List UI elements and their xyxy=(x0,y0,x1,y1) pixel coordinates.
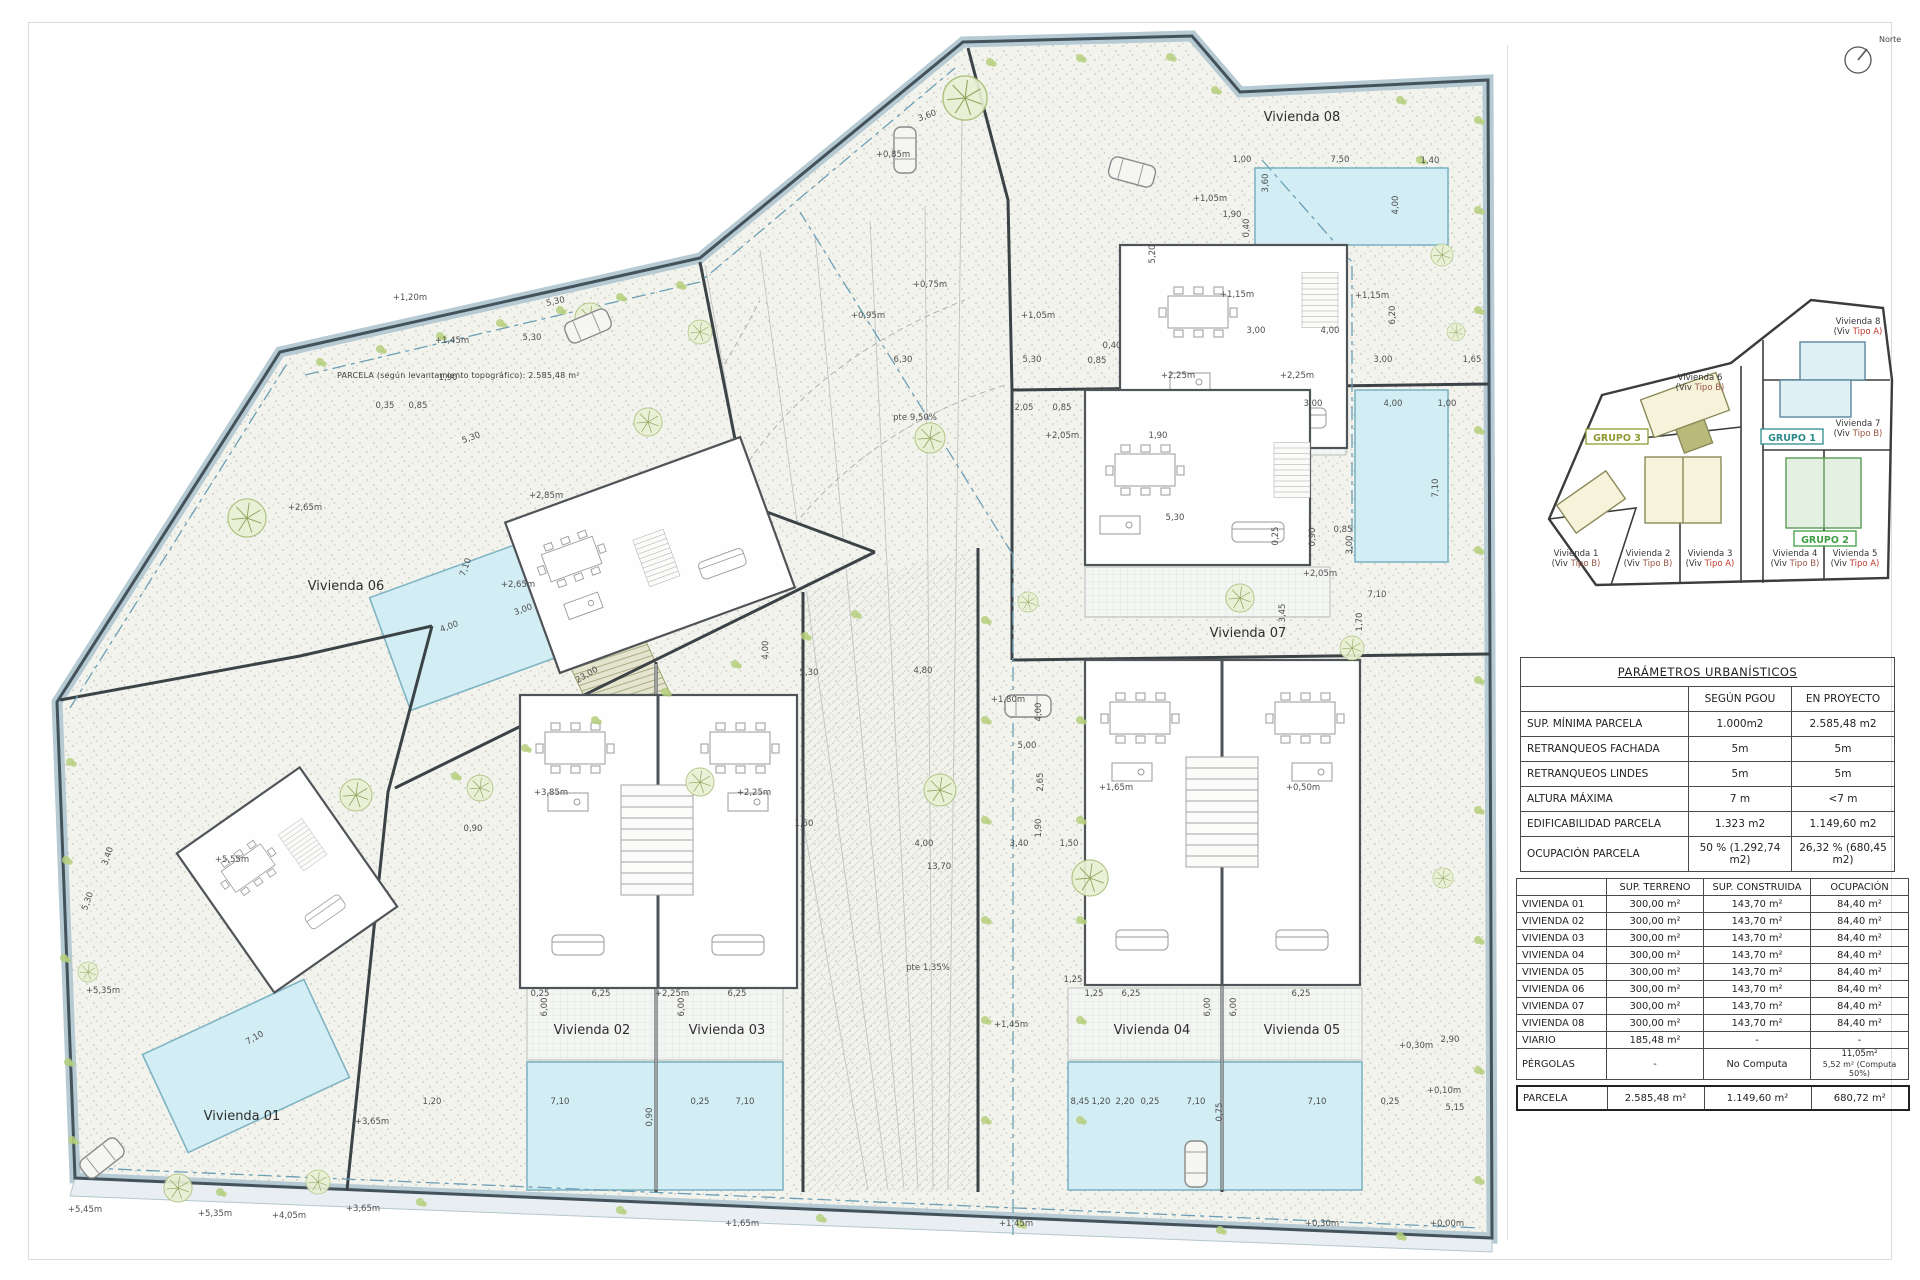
areas-header-cell: OCUPACIÓN xyxy=(1811,879,1909,896)
north-arrow: Norte xyxy=(1833,28,1908,83)
area-value: 143,70 m² xyxy=(1704,1015,1811,1032)
tree-icon xyxy=(78,962,98,982)
dimension-label: 7,50 xyxy=(1331,155,1350,165)
dimension-label: 1,40 xyxy=(1421,156,1440,166)
dimension-label: pte 1,35% xyxy=(906,963,950,973)
dimension-label: +2,25m xyxy=(737,788,771,798)
key-unit-name: Vivienda 6 xyxy=(1678,373,1723,383)
dimension-label: +5,55m xyxy=(215,855,249,865)
area-value: 84,40 m² xyxy=(1811,913,1909,930)
key-unit-tipo: (Viv Tipo B) xyxy=(1771,559,1820,569)
dimension-label: +5,35m xyxy=(198,1209,232,1219)
dimension-label: 3,60 xyxy=(1261,174,1271,193)
dimension-label: 1,25 xyxy=(1085,989,1104,999)
dimension-label: +1,45m xyxy=(435,336,469,346)
dimension-label: 4,80 xyxy=(914,666,933,676)
dimension-label: 7,10 xyxy=(1187,1097,1206,1107)
dimension-label: 1,65 xyxy=(1463,355,1482,365)
areas-header-cell xyxy=(1517,879,1607,896)
key-unit-tipo: (Viv Tipo A) xyxy=(1831,559,1880,569)
param-label: RETRANQUEOS LINDES xyxy=(1521,762,1689,787)
dimension-label: 0,85 xyxy=(1334,525,1353,535)
dimension-label: +4,05m xyxy=(272,1211,306,1221)
building-viviendas-02-03 xyxy=(520,695,797,988)
dimension-label: +0,95m xyxy=(851,311,885,321)
param-label: EDIFICABILIDAD PARCELA xyxy=(1521,812,1689,837)
area-row-label: VIVIENDA 04 xyxy=(1517,947,1607,964)
area-value: 84,40 m² xyxy=(1811,981,1909,998)
params-row: SUP. MÍNIMA PARCELA1.000m22.585,48 m2 xyxy=(1521,712,1895,737)
params-header-cell xyxy=(1521,687,1689,712)
building-viviendas-04-05 xyxy=(1085,660,1360,985)
tree-icon xyxy=(1447,323,1465,341)
key-unit-name: Vivienda 1 xyxy=(1554,549,1599,559)
dimension-label: 0,40 xyxy=(1242,219,1252,238)
site-unit-label: Vivienda 03 xyxy=(689,1023,766,1038)
key-unit-name: Vivienda 7 xyxy=(1836,419,1881,429)
site-unit-label: Vivienda 01 xyxy=(204,1109,281,1124)
area-value: 143,70 m² xyxy=(1704,947,1811,964)
key-unit-tipo: (Viv Tipo B) xyxy=(1624,559,1673,569)
area-value: 300,00 m² xyxy=(1607,930,1704,947)
area-value: 84,40 m² xyxy=(1811,1015,1909,1032)
dimension-label: 7,10 xyxy=(1308,1097,1327,1107)
key-group-label: GRUPO 3 xyxy=(1593,433,1641,444)
dimension-label: 4,00 xyxy=(1391,196,1401,215)
dimension-label: 4,00 xyxy=(1321,326,1340,336)
areas-table: SUP. TERRENOSUP. CONSTRUIDAOCUPACIÓN VIV… xyxy=(1516,878,1909,1080)
dimension-label: 5,30 xyxy=(523,333,542,343)
tree-icon xyxy=(688,320,712,344)
parcela-total-row: PARCELA2.585,48 m²1.149,60 m²680,72 m² xyxy=(1517,1086,1909,1110)
tree-icon xyxy=(1431,244,1453,266)
area-value: 300,00 m² xyxy=(1607,998,1704,1015)
tree-icon xyxy=(306,1170,330,1194)
dimension-label: 6,25 xyxy=(1292,989,1311,999)
tree-icon xyxy=(1226,584,1254,612)
dimension-label: 0,90 xyxy=(645,1108,655,1127)
dimension-label: 0,85 xyxy=(409,401,428,411)
area-value: 300,00 m² xyxy=(1607,913,1704,930)
area-value: 143,70 m² xyxy=(1704,913,1811,930)
area-value: 84,40 m² xyxy=(1811,930,1909,947)
parcel-note: PARCELA (según levantamiento topográfico… xyxy=(337,371,580,380)
params-header-row: SEGÚN PGOUEN PROYECTO xyxy=(1521,687,1895,712)
param-value: 5m xyxy=(1689,737,1792,762)
dimension-label: 0,75 xyxy=(1215,1103,1225,1122)
dimension-label: 0,25 xyxy=(1141,1097,1160,1107)
dimension-label: +3,85m xyxy=(534,788,568,798)
params-row: RETRANQUEOS FACHADA5m5m xyxy=(1521,737,1895,762)
param-value: 7 m xyxy=(1689,787,1792,812)
area-value: - xyxy=(1704,1032,1811,1049)
param-value: 1.000m2 xyxy=(1689,712,1792,737)
dimension-label: +1,45m xyxy=(994,1020,1028,1030)
dimension-label: 1,50 xyxy=(1060,839,1079,849)
dimension-label: 2,90 xyxy=(1441,1035,1460,1045)
area-value: 300,00 m² xyxy=(1607,947,1704,964)
dimension-label: 4,00 xyxy=(761,641,771,660)
param-value: 2.585,48 m2 xyxy=(1792,712,1895,737)
dimension-label: +2,25m xyxy=(1280,371,1314,381)
area-value: - xyxy=(1607,1049,1704,1080)
dimension-label: 3,00 xyxy=(1304,399,1323,409)
site-unit-label: Vivienda 07 xyxy=(1210,626,1287,641)
param-value: <7 m xyxy=(1792,787,1895,812)
parcela-label: PARCELA xyxy=(1517,1086,1607,1110)
dimension-label: +1,45m xyxy=(999,1219,1033,1229)
area-value: 300,00 m² xyxy=(1607,1015,1704,1032)
parameters-table: PARÁMETROS URBANÍSTICOS SEGÚN PGOUEN PRO… xyxy=(1520,657,1895,872)
dimension-label: 8,45 xyxy=(1071,1097,1090,1107)
drawing-sheet: +0,85m3,60+1,05m1,900,401,007,501,403,60… xyxy=(0,0,1920,1280)
dimension-label: 13,70 xyxy=(927,862,951,872)
dimension-label: 1,25 xyxy=(1064,975,1083,985)
dimension-label: +5,45m xyxy=(68,1205,102,1215)
area-value: 143,70 m² xyxy=(1704,981,1811,998)
dimension-label: 2,65 xyxy=(1036,773,1046,792)
dimension-label: +1,65m xyxy=(725,1219,759,1229)
area-row-label: VIARIO xyxy=(1517,1032,1607,1049)
area-value: 185,48 m² xyxy=(1607,1032,1704,1049)
dimension-label: 4,00 xyxy=(915,839,934,849)
dimension-label: 4,00 xyxy=(1034,703,1044,722)
dimension-label: 6,25 xyxy=(1122,989,1141,999)
dimension-label: 0,35 xyxy=(376,401,395,411)
key-unit-tipo: (Viv Tipo A) xyxy=(1834,327,1883,337)
dimension-label: +0,85m xyxy=(876,150,910,160)
areas-row: VIARIO185,48 m²-- xyxy=(1517,1032,1909,1049)
params-row: ALTURA MÁXIMA7 m<7 m xyxy=(1521,787,1895,812)
dimension-label: 6,20 xyxy=(1388,306,1398,325)
params-row: RETRANQUEOS LINDES5m5m xyxy=(1521,762,1895,787)
areas-row: VIVIENDA 03300,00 m²143,70 m²84,40 m² xyxy=(1517,930,1909,947)
area-value: 143,70 m² xyxy=(1704,896,1811,913)
areas-row: VIVIENDA 01300,00 m²143,70 m²84,40 m² xyxy=(1517,896,1909,913)
dimension-label: +0,30m xyxy=(1399,1041,1433,1051)
dimension-label: +1,05m xyxy=(1021,311,1055,321)
area-value: 300,00 m² xyxy=(1607,981,1704,998)
dimension-label: 0,25 xyxy=(1381,1097,1400,1107)
key-building-v8 xyxy=(1800,342,1865,380)
area-row-label: VIVIENDA 03 xyxy=(1517,930,1607,947)
dimension-label: 2,05 xyxy=(1015,403,1034,413)
params-header-cell: EN PROYECTO xyxy=(1792,687,1895,712)
area-value: 84,40 m² xyxy=(1811,896,1909,913)
area-row-label: VIVIENDA 05 xyxy=(1517,964,1607,981)
dimension-label: +3,65m xyxy=(346,1204,380,1214)
dimension-label: 5,00 xyxy=(1018,741,1037,751)
key-unit-name: Vivienda 2 xyxy=(1626,549,1671,559)
dimension-label: 0,25 xyxy=(691,1097,710,1107)
tree-icon xyxy=(915,423,945,453)
area-value: - xyxy=(1811,1032,1909,1049)
dimension-label: 6,00 xyxy=(1229,998,1239,1017)
area-row-label: VIVIENDA 08 xyxy=(1517,1015,1607,1032)
dimension-label: +1,20m xyxy=(393,293,427,303)
dimension-label: 7,10 xyxy=(551,1097,570,1107)
dimension-label: 0,85 xyxy=(1088,356,1107,366)
dimension-label: +5,35m xyxy=(86,986,120,996)
param-value: 1.149,60 m2 xyxy=(1792,812,1895,837)
param-value: 50 % (1.292,74 m2) xyxy=(1689,837,1792,872)
pergolas-ocupacion-cell: 11,05m²5,52 m² (Computa 50%) xyxy=(1811,1049,1909,1080)
dimension-label: +2,85m xyxy=(529,491,563,501)
dimension-label: +2,65m xyxy=(288,503,322,513)
dimension-label: 3,00 xyxy=(1374,355,1393,365)
dimension-label: +0,10m xyxy=(1427,1086,1461,1096)
key-unit-tipo: (Viv Tipo B) xyxy=(1552,559,1601,569)
param-value: 5m xyxy=(1689,762,1792,787)
param-label: SUP. MÍNIMA PARCELA xyxy=(1521,712,1689,737)
param-value: 1.323 m2 xyxy=(1689,812,1792,837)
tree-icon xyxy=(340,779,372,811)
dimension-label: +2,65m xyxy=(501,580,535,590)
dimension-label: 1,00 xyxy=(1438,399,1457,409)
key-unit-tipo: (Viv Tipo B) xyxy=(1834,429,1883,439)
areas-row: VIVIENDA 06300,00 m²143,70 m²84,40 m² xyxy=(1517,981,1909,998)
dimension-label: 1,00 xyxy=(1233,155,1252,165)
dimension-label: 6,25 xyxy=(592,989,611,999)
dimension-label: +0,50m xyxy=(1286,783,1320,793)
dimension-label: 0,25 xyxy=(1271,527,1281,546)
param-label: RETRANQUEOS FACHADA xyxy=(1521,737,1689,762)
params-header-cell: SEGÚN PGOU xyxy=(1689,687,1792,712)
areas-row: VIVIENDA 07300,00 m²143,70 m²84,40 m² xyxy=(1517,998,1909,1015)
parcela-value: 1.149,60 m² xyxy=(1704,1086,1811,1110)
area-value: 84,40 m² xyxy=(1811,998,1909,1015)
param-label: ALTURA MÁXIMA xyxy=(1521,787,1689,812)
dimension-label: +1,65m xyxy=(1099,783,1133,793)
parcela-value: 2.585,48 m² xyxy=(1607,1086,1704,1110)
key-plan: GRUPO 3GRUPO 1GRUPO 2 Vivienda 8(Viv Tip… xyxy=(1528,280,1906,614)
key-group-label: GRUPO 1 xyxy=(1768,433,1816,444)
dimension-label: +3,65m xyxy=(355,1117,389,1127)
key-unit-name: Vivienda 5 xyxy=(1833,549,1878,559)
panel-divider xyxy=(1507,45,1508,1240)
dimension-label: +2,05m xyxy=(1303,569,1337,579)
dimension-label: 0,85 xyxy=(1053,403,1072,413)
tree-icon xyxy=(924,774,956,806)
dimension-label: +1,80m xyxy=(991,695,1025,705)
dimension-label: 6,00 xyxy=(540,998,550,1017)
area-value: 143,70 m² xyxy=(1704,930,1811,947)
dimension-label: +0,75m xyxy=(913,280,947,290)
site-unit-label: Vivienda 04 xyxy=(1114,1023,1191,1038)
params-row: OCUPACIÓN PARCELA50 % (1.292,74 m2)26,32… xyxy=(1521,837,1895,872)
tree-icon xyxy=(686,768,714,796)
params-row: EDIFICABILIDAD PARCELA1.323 m21.149,60 m… xyxy=(1521,812,1895,837)
dimension-label: 0,90 xyxy=(464,824,483,834)
param-value: 5m xyxy=(1792,737,1895,762)
dimension-label: 5,30 xyxy=(1023,355,1042,365)
car-icon xyxy=(1185,1141,1207,1187)
param-value: 26,32 % (680,45 m2) xyxy=(1792,837,1895,872)
dimension-label: 3,00 xyxy=(1247,326,1266,336)
dimension-label: 0,25 xyxy=(531,989,550,999)
dimension-label: 7,10 xyxy=(736,1097,755,1107)
tree-icon xyxy=(1433,868,1453,888)
area-value: 143,70 m² xyxy=(1704,964,1811,981)
area-value: No Computa xyxy=(1704,1049,1811,1080)
dimension-label: 6,25 xyxy=(728,989,747,999)
areas-row: VIVIENDA 05300,00 m²143,70 m²84,40 m² xyxy=(1517,964,1909,981)
dimension-label: 7,10 xyxy=(1368,590,1387,600)
areas-footer-table: PARCELA2.585,48 m²1.149,60 m²680,72 m² xyxy=(1516,1085,1910,1111)
area-value: 300,00 m² xyxy=(1607,964,1704,981)
dimension-label: 3,00 xyxy=(1345,536,1355,555)
dimension-label: 6,00 xyxy=(1203,998,1213,1017)
dimension-label: 1,90 xyxy=(1034,819,1044,838)
dimension-label: 1,50 xyxy=(795,819,814,829)
areas-row: VIVIENDA 04300,00 m²143,70 m²84,40 m² xyxy=(1517,947,1909,964)
dimension-label: 4,00 xyxy=(1384,399,1403,409)
parcela-value: 680,72 m² xyxy=(1811,1086,1909,1110)
dimension-label: +2,05m xyxy=(1045,431,1079,441)
dimension-label: 7,10 xyxy=(1431,479,1441,498)
key-unit-name: Vivienda 8 xyxy=(1836,317,1881,327)
areas-header-row: SUP. TERRENOSUP. CONSTRUIDAOCUPACIÓN xyxy=(1517,879,1909,896)
tree-icon xyxy=(1072,860,1108,896)
tree-icon xyxy=(228,499,266,537)
north-needle xyxy=(1858,49,1867,60)
area-value: 300,00 m² xyxy=(1607,896,1704,913)
areas-header-cell: SUP. CONSTRUIDA xyxy=(1704,879,1811,896)
dimension-label: +2,25m xyxy=(655,989,689,999)
params-title-row: PARÁMETROS URBANÍSTICOS xyxy=(1521,658,1895,687)
dimension-label: 6,00 xyxy=(677,998,687,1017)
tree-icon xyxy=(1340,636,1364,660)
dimension-label: 1,70 xyxy=(1355,613,1365,632)
dimension-label: +0,30m xyxy=(1305,1219,1339,1229)
dimension-label: +2,25m xyxy=(1161,371,1195,381)
dimension-label: 5,15 xyxy=(1446,1103,1465,1113)
dimension-label: 6,30 xyxy=(894,355,913,365)
area-value: 84,40 m² xyxy=(1811,947,1909,964)
area-value: 84,40 m² xyxy=(1811,964,1909,981)
dimension-label: pte 9,50% xyxy=(893,413,937,423)
dimension-label: 1,20 xyxy=(423,1097,442,1107)
key-unit-tipo: (Viv Tipo A) xyxy=(1686,559,1735,569)
param-label: OCUPACIÓN PARCELA xyxy=(1521,837,1689,872)
area-row-label: PÉRGOLAS xyxy=(1517,1049,1607,1080)
key-building-v7 xyxy=(1780,380,1851,417)
dimension-label: 5,30 xyxy=(800,668,819,678)
north-label: Norte xyxy=(1879,35,1901,44)
key-unit-name: Vivienda 4 xyxy=(1773,549,1818,559)
tree-icon xyxy=(634,408,662,436)
dimension-label: 1,20 xyxy=(1092,1097,1111,1107)
dimension-label: 0,40 xyxy=(1103,341,1122,351)
areas-row: VIVIENDA 08300,00 m²143,70 m²84,40 m² xyxy=(1517,1015,1909,1032)
area-row-label: VIVIENDA 06 xyxy=(1517,981,1607,998)
area-value: 143,70 m² xyxy=(1704,998,1811,1015)
dimension-label: 3,40 xyxy=(1010,839,1029,849)
dimension-label: 0,90 xyxy=(1308,528,1318,547)
dimension-label: 2,20 xyxy=(1116,1097,1135,1107)
dimension-label: +1,15m xyxy=(1355,291,1389,301)
site-unit-label: Vivienda 05 xyxy=(1264,1023,1341,1038)
dimension-label: +0,00m xyxy=(1430,1219,1464,1229)
site-unit-label: Vivienda 06 xyxy=(308,579,385,594)
key-unit-tipo: (Viv Tipo B) xyxy=(1676,383,1725,393)
site-unit-label: Vivienda 02 xyxy=(554,1023,631,1038)
tree-icon xyxy=(1018,592,1038,612)
params-title: PARÁMETROS URBANÍSTICOS xyxy=(1521,658,1895,687)
dimension-label: 5,30 xyxy=(1166,513,1185,523)
area-row-label: VIVIENDA 07 xyxy=(1517,998,1607,1015)
tree-icon xyxy=(164,1174,192,1202)
tree-icon xyxy=(943,76,987,120)
dimension-label: +1,15m xyxy=(1220,290,1254,300)
tree-icon xyxy=(467,775,493,801)
site-unit-label: Vivienda 08 xyxy=(1264,110,1341,125)
dimension-label: 5,20 xyxy=(1148,245,1158,264)
area-row-label: VIVIENDA 02 xyxy=(1517,913,1607,930)
areas-row: PÉRGOLAS-No Computa11,05m²5,52 m² (Compu… xyxy=(1517,1049,1909,1080)
area-row-label: VIVIENDA 01 xyxy=(1517,896,1607,913)
dimension-label: 1,90 xyxy=(1223,210,1242,220)
dimension-label: +1,05m xyxy=(1193,194,1227,204)
param-value: 5m xyxy=(1792,762,1895,787)
areas-header-cell: SUP. TERRENO xyxy=(1607,879,1704,896)
dimension-label: 3,45 xyxy=(1278,604,1288,623)
key-group-label: GRUPO 2 xyxy=(1801,535,1849,546)
dimension-label: 1,90 xyxy=(1149,431,1168,441)
areas-panel: SUP. TERRENOSUP. CONSTRUIDAOCUPACIÓN VIV… xyxy=(1516,878,1908,1111)
key-unit-name: Vivienda 3 xyxy=(1688,549,1733,559)
areas-row: VIVIENDA 02300,00 m²143,70 m²84,40 m² xyxy=(1517,913,1909,930)
